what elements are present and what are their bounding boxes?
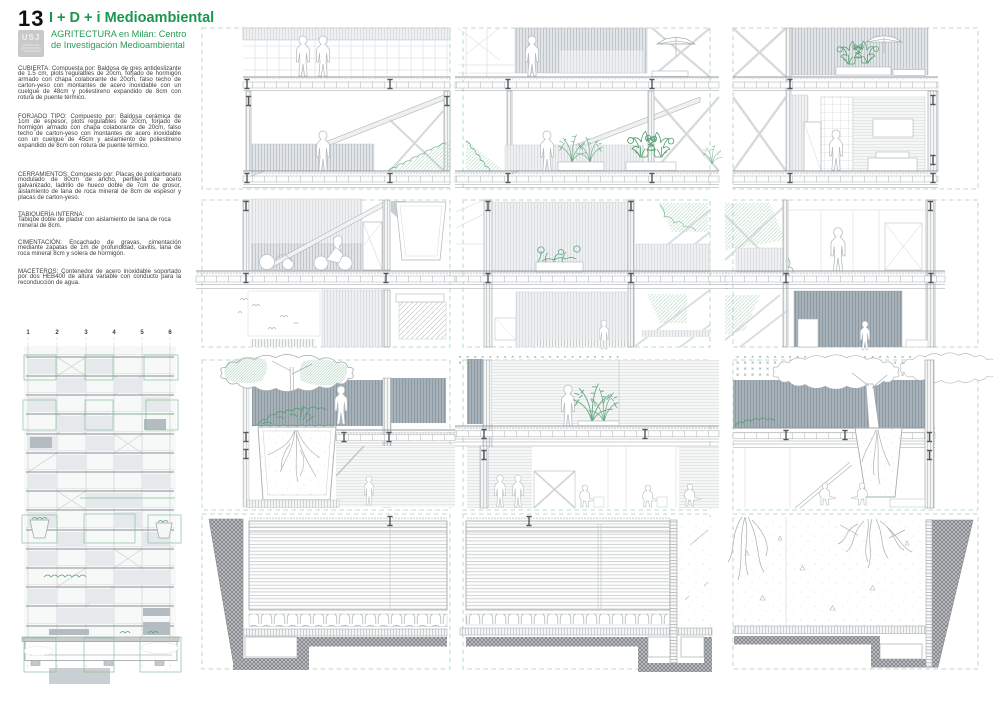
svg-text:2: 2	[55, 330, 59, 336]
svg-text:1: 1	[26, 330, 30, 336]
svg-text:6: 6	[168, 330, 172, 336]
svg-text:5: 5	[140, 330, 144, 336]
svg-text:3: 3	[84, 330, 88, 336]
svg-text:4: 4	[112, 330, 116, 336]
